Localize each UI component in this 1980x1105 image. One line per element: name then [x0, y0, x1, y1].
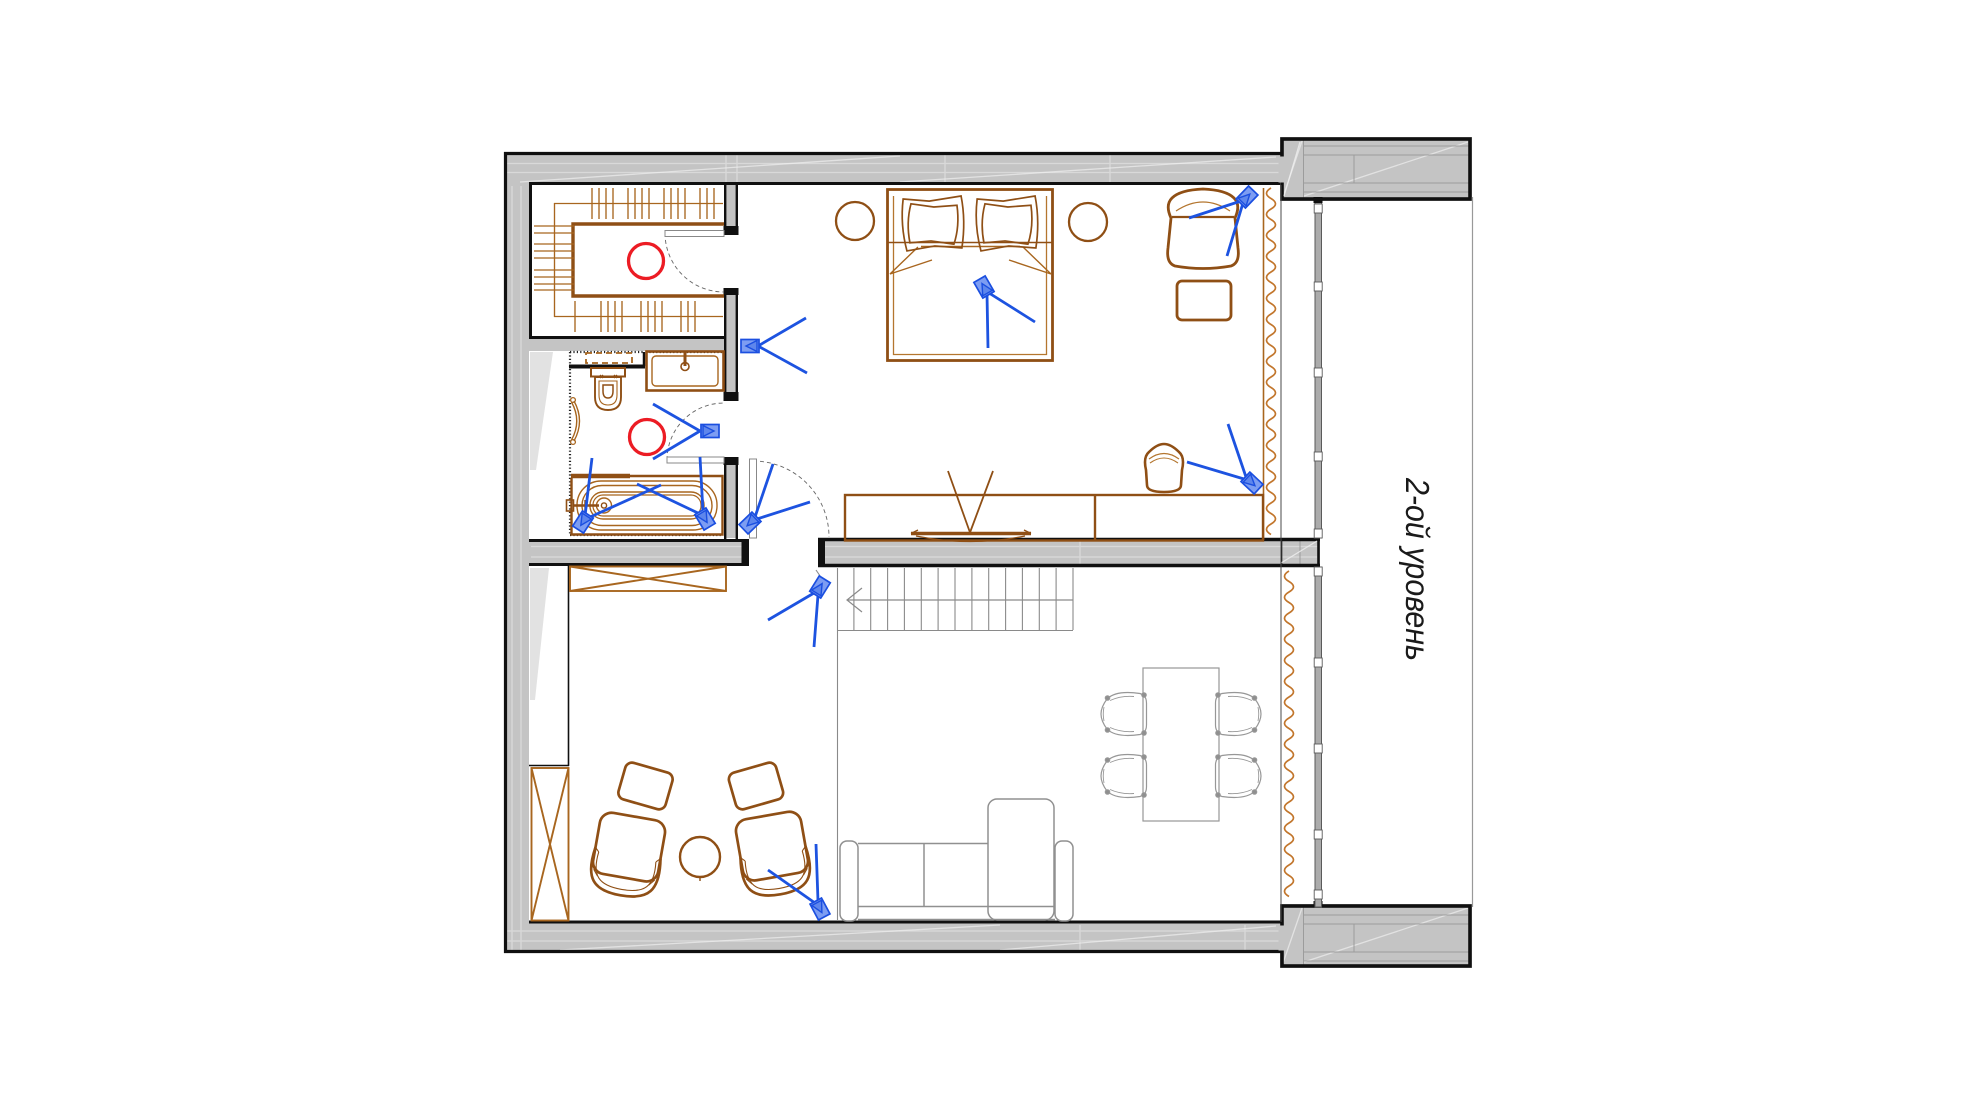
- svg-text:2-ой уровень: 2-ой уровень: [1399, 477, 1436, 661]
